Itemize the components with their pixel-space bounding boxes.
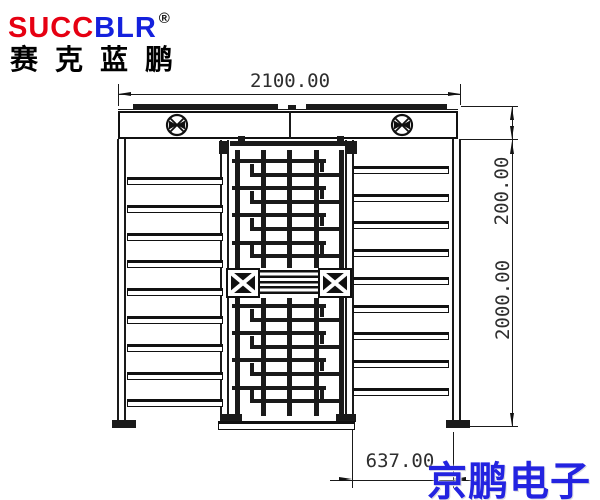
watermark-text: 京鹏电子 <box>427 449 591 500</box>
rotor-arm-hook <box>320 362 324 371</box>
rotor-arm <box>232 159 326 163</box>
header-divider <box>289 111 291 139</box>
rotor-arm-hook <box>320 245 324 254</box>
dim-line-top <box>118 94 461 95</box>
rotor-arm-hook <box>250 164 254 173</box>
rotor-arm-hook <box>250 363 254 372</box>
dim-arrow <box>510 126 514 139</box>
dim-label-body-height: 2000.00 <box>492 252 514 348</box>
cage-bracket <box>347 141 357 154</box>
turnstile-drawing: SUCCBLR® 赛克蓝鹏 2100.00 <box>0 0 600 500</box>
dim-label-header-height: 200.00 <box>491 150 513 232</box>
cage-base-plate <box>218 421 355 430</box>
crossed-box-icon <box>323 273 347 293</box>
dim-arrow <box>510 107 514 120</box>
wing-rail-left <box>127 177 223 185</box>
rotor-bar <box>314 150 319 268</box>
dim-arrow <box>118 92 131 96</box>
registered-trademark-icon: ® <box>159 10 171 27</box>
wing-rail-right <box>353 360 449 368</box>
rotor-arm <box>250 200 344 204</box>
top-cap-right <box>306 104 447 110</box>
rotor-arm-hook <box>250 309 254 318</box>
left-column <box>124 139 126 425</box>
right-column <box>459 139 461 425</box>
left-column <box>117 139 119 425</box>
rotor-arm <box>250 372 344 376</box>
rotor-arm-hook <box>320 390 324 399</box>
wing-rail-left <box>127 372 223 380</box>
rotor-arm <box>250 254 344 258</box>
dim-label-width: 2100.00 <box>230 70 350 92</box>
rotor-bar <box>287 150 292 268</box>
rotor-arm-hook <box>320 190 324 199</box>
rotor-arm <box>250 173 344 177</box>
dim-arrow <box>510 413 514 426</box>
right-column <box>452 139 454 425</box>
crossed-box-icon <box>231 273 255 293</box>
rotor-arm <box>250 318 344 322</box>
wing-rail-left <box>127 344 223 352</box>
rotor-arm-hook <box>250 390 254 399</box>
rotor-arm-hook <box>250 218 254 227</box>
wing-rail-right <box>353 277 449 285</box>
wing-rail-right <box>353 221 449 229</box>
rotor-arm-hook <box>320 335 324 344</box>
rotor-bar <box>235 150 240 268</box>
cage-tab <box>238 136 245 141</box>
dim-arrow <box>339 477 352 481</box>
wing-rail-left <box>127 288 223 296</box>
rotor-arm-hook <box>250 191 254 200</box>
wing-rail-right <box>353 388 449 396</box>
cage-tab <box>337 136 344 141</box>
rotor-bar <box>261 150 266 268</box>
left-column-foot <box>112 420 136 428</box>
rotor-arm-hook <box>250 245 254 254</box>
wing-rail-left <box>127 205 223 213</box>
rotor-arm <box>232 213 326 217</box>
crossbar-stripes <box>260 270 318 296</box>
rotor-arm <box>250 227 344 231</box>
top-center-tab <box>288 105 296 110</box>
rotor-arm <box>232 241 326 245</box>
logo-chinese-name: 赛克蓝鹏 <box>10 38 190 78</box>
wing-rail-left <box>127 233 223 241</box>
rotor-arm <box>250 345 344 349</box>
top-cap-left <box>133 104 278 110</box>
rotor-arm <box>250 399 344 403</box>
wing-rail-left <box>127 399 223 407</box>
rotor-arm-hook <box>320 217 324 226</box>
dim-arrow <box>448 92 461 96</box>
rotor-arm <box>232 331 326 335</box>
rotor-arm <box>232 386 326 390</box>
wing-rail-right <box>353 332 449 340</box>
wing-rail-right <box>353 166 449 174</box>
wing-rail-left <box>127 316 223 324</box>
cage-top-plate <box>230 141 346 146</box>
rotor-arm <box>232 358 326 362</box>
cage-bracket <box>219 141 229 154</box>
rotor-arm <box>232 186 326 190</box>
dim-ext-line <box>461 139 518 140</box>
rotor-arm-hook <box>320 163 324 172</box>
circled-x-icon <box>390 113 414 137</box>
rotor-arm-hook <box>250 336 254 345</box>
wing-rail-right <box>353 249 449 257</box>
rotor-bar <box>339 150 344 268</box>
rotor-arm <box>232 304 326 308</box>
rotor-arm-hook <box>320 308 324 317</box>
wing-rail-right <box>353 305 449 313</box>
wing-rail-right <box>353 194 449 202</box>
wing-rail-left <box>127 260 223 268</box>
circled-x-icon <box>165 113 189 137</box>
rotor-bar <box>235 298 240 416</box>
dim-ext-line <box>455 426 518 427</box>
